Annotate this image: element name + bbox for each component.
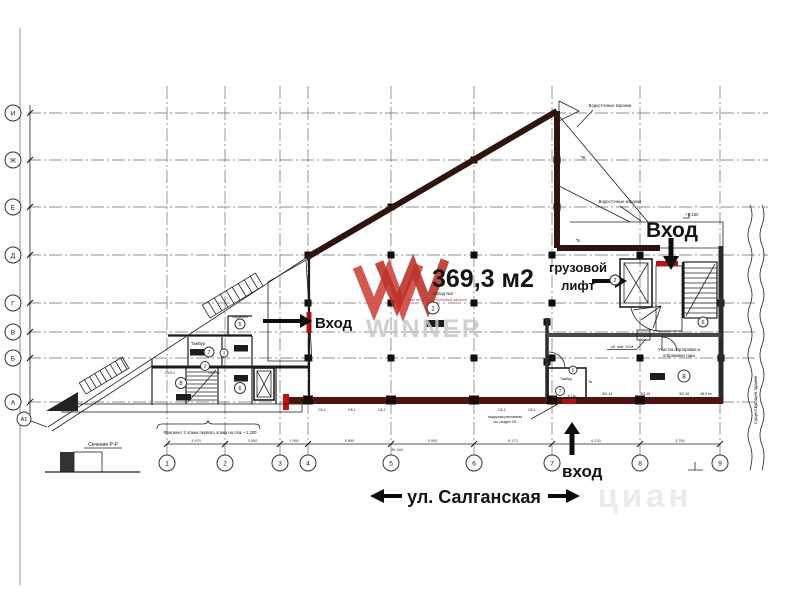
garderob-label: Гардероб xyxy=(232,315,250,319)
room-tag-box xyxy=(190,349,205,356)
tv2-label: Тв xyxy=(588,380,592,384)
eo14-label: ЭО-14 xyxy=(602,392,612,396)
drain-note-2: Водосточные воронки xyxy=(599,199,642,204)
left-elevator-cross xyxy=(257,371,271,397)
dimension-value: 3 900 xyxy=(248,439,258,443)
eo15-label: ЭО-15 xyxy=(640,392,650,396)
tambur-right-label: Тамбур xyxy=(560,377,572,381)
skl12-label: СКЛ-12 xyxy=(208,371,220,375)
sorting-room-label-1: Участок сортировки и xyxy=(658,347,701,352)
sorting-room-label-2: отбраковки тары xyxy=(663,353,696,358)
room-tag-box xyxy=(234,375,248,382)
column xyxy=(471,355,478,362)
floor-plan-canvas: WINNER Склад №2 план не является публичн… xyxy=(0,0,800,600)
winder-stair xyxy=(631,306,661,331)
entrance-top-label: Вход xyxy=(646,219,698,242)
vestibule-hatch xyxy=(656,266,682,331)
sk-label: СК-1 xyxy=(498,408,506,412)
corner-level-mark xyxy=(688,462,703,470)
section-label: Сечение Р-Р xyxy=(88,442,118,448)
fragment-note: Фрагмент 2 этажа первого этажа на отм. +… xyxy=(164,430,258,435)
axis-label: 6 xyxy=(472,461,476,468)
axis-label: 3 xyxy=(278,461,282,468)
canopy-slope-lines xyxy=(559,116,648,222)
freight-elevator-label-1: грузовой xyxy=(549,260,607,275)
left-rooms-bottom-wall xyxy=(62,404,302,412)
axis-label: А1 xyxy=(21,417,28,423)
room-number: 7 xyxy=(208,350,211,356)
axis-label: В xyxy=(11,330,15,337)
break-line-2 xyxy=(760,205,764,470)
floor-plan-drawing: WINNER Склад №2 план не является публичн… xyxy=(0,0,800,600)
dimension-value: 3 780 xyxy=(675,439,685,443)
column xyxy=(471,300,478,307)
sign-note-2: см. раздел СВ xyxy=(493,420,517,424)
diagonal-wall xyxy=(306,111,557,258)
fragment-brace xyxy=(157,420,260,429)
entrance-bottom-label: вход xyxy=(562,462,603,481)
street-wall xyxy=(288,397,723,404)
freight-elevator-label-2: лифт xyxy=(561,278,595,293)
corner-detail xyxy=(559,101,579,121)
labels: 369,3 м2 Вход Вход вход грузовой лифт ул… xyxy=(88,103,758,507)
entrance-bottom-arrowhead xyxy=(564,422,580,434)
sign-note-1: наружная рекламная xyxy=(488,415,522,419)
dimension-value: 5 890 xyxy=(345,439,355,443)
sk-label: СК-1 xyxy=(528,408,536,412)
axis-label: 8 xyxy=(638,461,642,468)
street-arrow-left-head xyxy=(370,489,384,503)
room-number: 1 xyxy=(431,305,435,312)
sk-label: СК-1 xyxy=(378,408,386,412)
diagonal-stair-lower xyxy=(79,357,129,394)
sk-label: СК-1 xyxy=(348,408,356,412)
diagonal-stair-upper xyxy=(202,273,263,318)
area-label: 369,3 м2 xyxy=(432,265,534,293)
dimension-value: 1 980 xyxy=(289,439,299,443)
tambur-left-label: Тамбур xyxy=(191,341,206,346)
street-arrow-right-head xyxy=(566,489,580,503)
axis-label: Б xyxy=(11,356,15,363)
tv1-label: Тв xyxy=(581,155,586,160)
tip-triangle xyxy=(46,392,78,411)
skl1-label: СКЛ-1 xyxy=(165,371,175,375)
axis-label: Г xyxy=(11,301,15,308)
existing-building-label: Существующее здание xyxy=(753,375,758,424)
eo16-label: ЭО-16 xyxy=(679,392,689,396)
room-number: 8 xyxy=(682,373,686,380)
elevation-mark: +0,150 xyxy=(686,212,700,217)
axis-label: Ж xyxy=(10,158,16,165)
retaining-line xyxy=(52,366,152,431)
left-rooms-door-red xyxy=(283,394,289,410)
drain-note-1: Водосточные воронки xyxy=(589,103,632,108)
break-line-1 xyxy=(748,205,752,470)
room-tag-box xyxy=(650,373,665,380)
wall-pilaster xyxy=(635,396,645,405)
room-number: 2 xyxy=(614,278,617,284)
axis-label: 9 xyxy=(718,461,722,468)
wall-pilaster xyxy=(469,396,479,405)
room-number: 6 xyxy=(238,386,241,392)
ramp-hatch-zone xyxy=(268,260,312,361)
a1-tie-line xyxy=(31,421,47,427)
axis-label: 2 xyxy=(223,461,227,468)
watermark: WINNER Склад №2 план не является публичн… xyxy=(357,260,692,514)
area-small-label: 48,9 м² xyxy=(700,392,712,396)
entrance-left-label: Вход xyxy=(315,315,353,332)
column xyxy=(637,355,644,362)
wall-pilaster xyxy=(303,396,313,405)
sk-label: СК-1 xyxy=(318,408,326,412)
column xyxy=(549,252,556,259)
section-detail-hatch xyxy=(74,452,102,472)
winner-watermark-text: WINNER xyxy=(366,315,482,343)
dimension-value: 4 970 xyxy=(191,439,201,443)
room-tag-box xyxy=(176,394,191,401)
ob-pov-label: об. пов. 2СМ xyxy=(611,345,634,349)
tk1-label: Тк xyxy=(576,238,580,243)
dimension-value: 5 900 xyxy=(428,439,438,443)
column xyxy=(549,300,556,307)
axis-label: И xyxy=(11,111,16,118)
room-number: 7 xyxy=(559,389,562,395)
area-small2-label: 4,1 м² xyxy=(568,394,577,398)
street-label: ул. Салганская xyxy=(407,487,541,507)
dimension-value: 8 170 xyxy=(508,439,518,443)
wall-pilaster xyxy=(547,396,557,405)
faint-watermark-text: циан xyxy=(598,477,693,514)
room-number: 6 xyxy=(702,320,705,326)
axis-label: 1 xyxy=(165,461,169,468)
column xyxy=(388,252,395,259)
wall-pilaster xyxy=(386,396,396,405)
axis-label: 4 xyxy=(306,461,310,468)
room-number: 5 xyxy=(239,322,242,328)
column xyxy=(388,355,395,362)
room-tag-box xyxy=(234,345,248,352)
axis-label: Д xyxy=(11,253,16,260)
column xyxy=(471,252,478,259)
watermark-disclaimer: план не является публичной офертой xyxy=(407,298,467,302)
elevator-cross xyxy=(624,263,648,303)
dimension-value: 6 220 xyxy=(591,439,601,443)
axis-label: Е xyxy=(11,205,16,212)
room-number: 2 xyxy=(204,364,207,370)
axis-label: А xyxy=(11,400,16,407)
section-detail-solid xyxy=(60,452,74,472)
room-number: 8 xyxy=(179,381,182,387)
column xyxy=(637,252,644,259)
axis-label: 5 xyxy=(389,461,393,468)
axis-label: 7 xyxy=(550,461,554,468)
dimension-total: 39 160 xyxy=(391,448,403,452)
